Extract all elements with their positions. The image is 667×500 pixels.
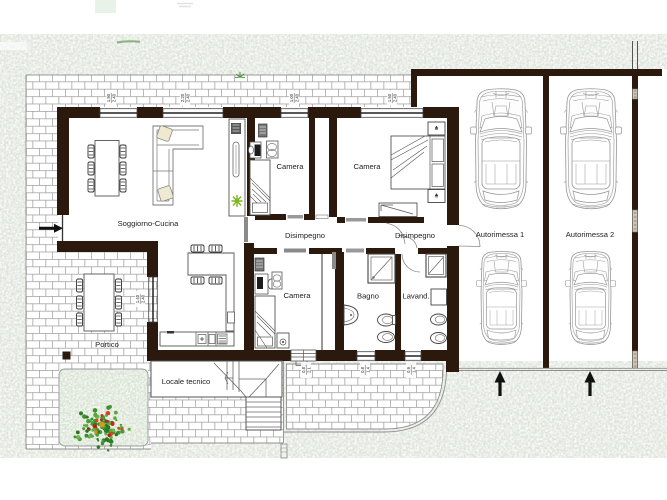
svg-text:Camera: Camera xyxy=(283,291,311,300)
svg-text:1.90: 1.90 xyxy=(106,93,111,102)
svg-text:Camera: Camera xyxy=(276,162,304,171)
svg-text:Camera: Camera xyxy=(353,162,381,171)
svg-text:Autorimessa 1: Autorimessa 1 xyxy=(476,230,525,239)
svg-text:1.4: 1.4 xyxy=(365,366,370,372)
svg-text:2.40: 2.40 xyxy=(140,294,145,303)
svg-text:0.8: 0.8 xyxy=(360,366,365,372)
svg-text:Bagno: Bagno xyxy=(357,292,379,301)
svg-text:Autorimessa 2: Autorimessa 2 xyxy=(566,230,615,239)
svg-text:2.1: 2.1 xyxy=(306,366,311,372)
svg-text:2.40: 2.40 xyxy=(392,93,397,102)
svg-text:2.40: 2.40 xyxy=(294,93,299,102)
svg-text:Lavand.: Lavand. xyxy=(402,292,429,301)
svg-text:1.4: 1.4 xyxy=(411,366,416,372)
svg-text:Soggiorno-Cucina: Soggiorno-Cucina xyxy=(118,219,180,228)
svg-text:Disimpegno: Disimpegno xyxy=(395,231,435,240)
svg-text:1.50: 1.50 xyxy=(387,93,392,102)
svg-text:1.00: 1.00 xyxy=(289,93,294,102)
svg-text:0.9: 0.9 xyxy=(406,366,411,372)
svg-text:Disimpegno: Disimpegno xyxy=(285,231,325,240)
svg-text:Portico: Portico xyxy=(95,340,119,349)
svg-text:0.8: 0.8 xyxy=(301,366,306,372)
svg-text:2.40: 2.40 xyxy=(185,93,190,102)
svg-text:2.20: 2.20 xyxy=(180,93,185,102)
svg-text:Locale tecnico: Locale tecnico xyxy=(162,377,211,386)
svg-text:1.40: 1.40 xyxy=(135,294,140,303)
svg-text:2.40: 2.40 xyxy=(111,93,116,102)
